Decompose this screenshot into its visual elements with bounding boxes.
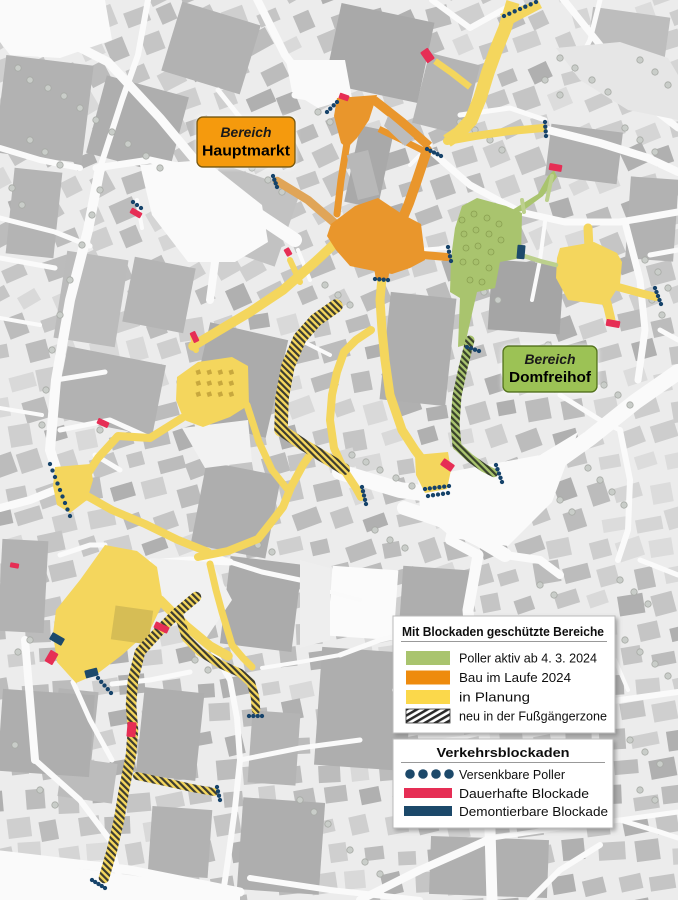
svg-text:Bau im Laufe 2024: Bau im Laufe 2024 <box>459 670 571 685</box>
svg-text:Versenkbare Poller: Versenkbare Poller <box>459 767 566 782</box>
svg-text:Domfreihof: Domfreihof <box>509 370 591 386</box>
svg-text:Demontierbare Blockade: Demontierbare Blockade <box>459 804 608 819</box>
svg-text:in Planung: in Planung <box>459 690 530 705</box>
svg-text:Bereich: Bereich <box>525 351 576 367</box>
svg-text:Poller aktiv ab 4. 3. 2024: Poller aktiv ab 4. 3. 2024 <box>459 651 597 666</box>
svg-text:Bereich: Bereich <box>221 124 272 140</box>
svg-text:Verkehrsblockaden: Verkehrsblockaden <box>437 745 570 760</box>
svg-text:neu in der Fußgängerzone: neu in der Fußgängerzone <box>459 709 607 724</box>
svg-text:Hauptmarkt: Hauptmarkt <box>202 144 290 160</box>
svg-text:Dauerhafte Blockade: Dauerhafte Blockade <box>459 786 589 801</box>
svg-text:Mit Blockaden geschützte Berei: Mit Blockaden geschützte Bereiche <box>402 624 604 639</box>
